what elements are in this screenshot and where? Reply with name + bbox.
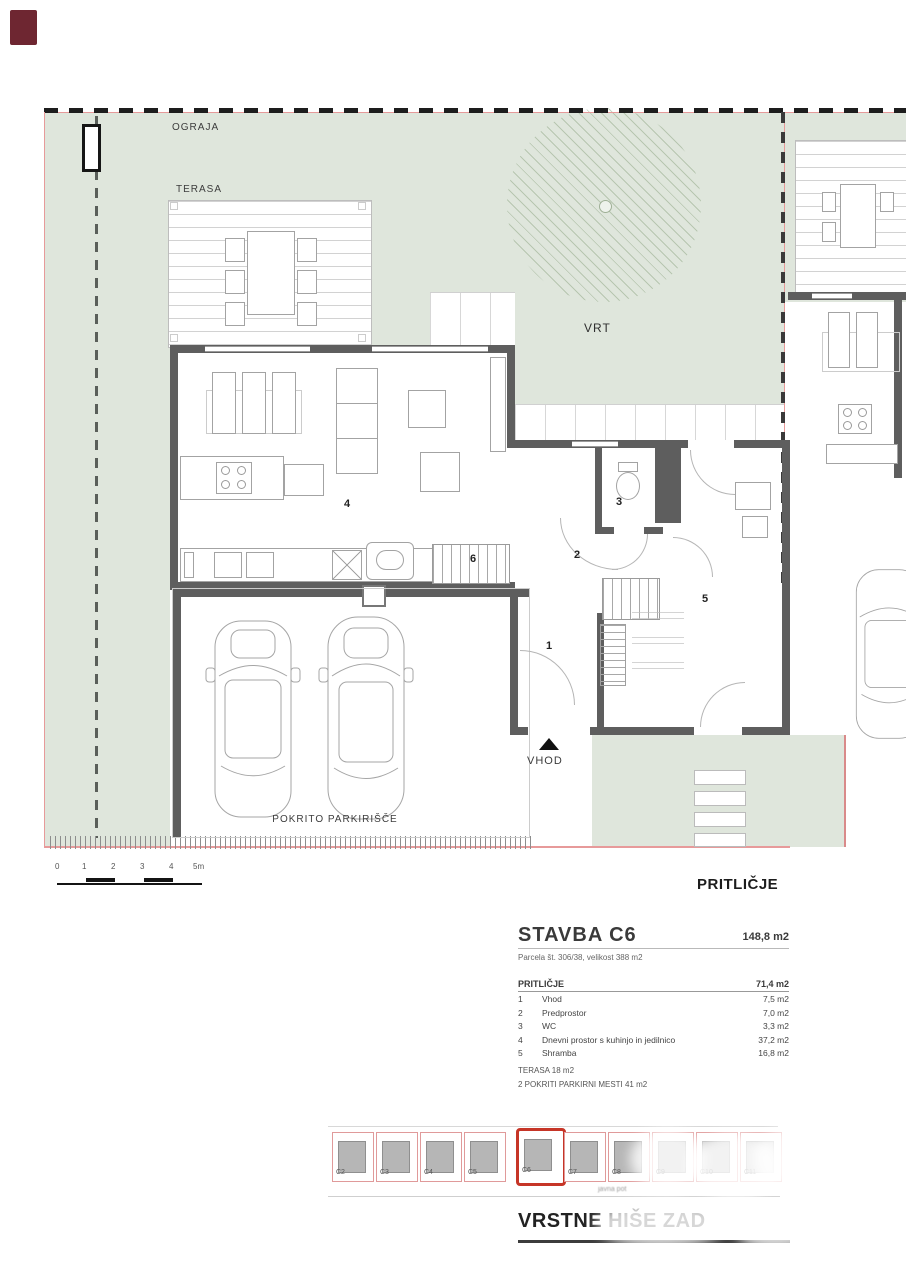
burner — [858, 421, 867, 430]
unit-label: C10 — [700, 1169, 713, 1176]
neighbor-chair — [822, 192, 836, 212]
room-area-cell: 7,5 m2 — [739, 993, 789, 1007]
project-title: VRSTNE HIŠE ZAD — [518, 1210, 706, 1233]
equipment-sketch — [632, 612, 684, 686]
door-opening — [694, 727, 742, 735]
room-number-4: 4 — [344, 498, 350, 510]
unit-label: C11 — [744, 1169, 756, 1176]
dining-chair — [242, 372, 266, 434]
scalebar-segment — [144, 878, 173, 882]
door-opening — [688, 440, 734, 448]
divider — [518, 948, 789, 949]
label-terasa: TERASA — [176, 184, 222, 195]
terrace-chair — [297, 302, 317, 326]
room-row: 4Dnevni prostor s kuhinjo in jedilnico37… — [518, 1034, 789, 1048]
scalebar-bar — [57, 876, 202, 885]
room-name-cell: Vhod — [542, 993, 739, 1007]
room-area-cell: 7,0 m2 — [739, 1007, 789, 1021]
room-area-cell: 37,2 m2 — [739, 1034, 789, 1048]
room-number-2: 2 — [574, 549, 580, 561]
room-no-cell: 4 — [518, 1034, 542, 1048]
burner — [237, 480, 246, 489]
unit-label: C4 — [424, 1169, 433, 1176]
window — [205, 346, 310, 352]
terrace-corner — [170, 202, 178, 210]
door-arc — [700, 682, 745, 727]
unit-label: C5 — [468, 1169, 477, 1176]
burner — [237, 466, 246, 475]
boundary-dashed-top — [44, 108, 906, 113]
car-outline — [203, 616, 303, 822]
scalebar-ticks: 012345m — [55, 862, 215, 874]
blur-smudge — [735, 1208, 815, 1250]
paving-strip-south — [515, 404, 785, 441]
pantry-box — [332, 550, 362, 580]
room-number-1: 1 — [546, 640, 552, 652]
door-arc — [560, 518, 618, 570]
room-table-body: 1Vhod7,5 m22Predprostor7,0 m23WC3,3 m24D… — [518, 993, 789, 1061]
entry-steps — [694, 812, 746, 827]
room-name-cell: Shramba — [542, 1047, 739, 1061]
storage-shelves — [600, 624, 626, 686]
site-map-unit-C2: C2 — [332, 1132, 374, 1182]
wall-segment — [782, 448, 790, 735]
scalebar-tick: 5m — [193, 862, 204, 871]
door-arc — [673, 537, 713, 577]
label-vrt: VRT — [584, 321, 611, 335]
site-map-unit-C9: C9 — [652, 1132, 694, 1182]
unit-label: C8 — [612, 1169, 621, 1176]
title-underline — [518, 1240, 790, 1243]
terrace-chair — [225, 270, 245, 294]
entry-steps — [694, 833, 746, 847]
toilet-tank — [618, 462, 638, 472]
site-map-unit-C8: C8 — [608, 1132, 650, 1182]
scalebar-tick: 4 — [169, 862, 173, 871]
sofa — [336, 368, 378, 474]
floor-label: PRITLIČJE — [697, 876, 778, 893]
entrance-door-opening — [528, 727, 590, 735]
neighbor-chair — [856, 312, 878, 368]
wall-segment — [655, 443, 681, 523]
room-row: 1Vhod7,5 m2 — [518, 993, 789, 1007]
entry-steps — [694, 770, 746, 785]
neighbor-cooktop — [838, 404, 872, 434]
scalebar-tick: 3 — [140, 862, 144, 871]
side-table — [408, 390, 446, 428]
tv-sideboard — [490, 357, 506, 452]
floor-header: PRITLIČJE — [518, 979, 564, 989]
terrace-chair — [297, 270, 317, 294]
burner — [858, 408, 867, 417]
wall-segment — [507, 345, 515, 448]
label-pokrito-parkirisce: POKRITO PARKIRIŠČE — [225, 814, 445, 825]
site-map-unit-C11: C11 — [740, 1132, 782, 1182]
burner — [843, 408, 852, 417]
dining-chair — [272, 372, 296, 434]
garden-area-right — [515, 348, 785, 404]
burner — [843, 421, 852, 430]
divider — [328, 1196, 780, 1197]
neighbor-counter — [826, 444, 898, 464]
building-area: 148,8 m2 — [718, 931, 789, 943]
fence-dashed-left — [95, 116, 98, 838]
unit-label: C6 — [522, 1167, 531, 1174]
unit-label: C3 — [380, 1169, 389, 1176]
site-map-unit-C6: C6 — [516, 1128, 566, 1186]
neighbor-chair — [880, 192, 894, 212]
room-no-cell: 2 — [518, 1007, 542, 1021]
room-no-cell: 3 — [518, 1020, 542, 1034]
terrace-chair — [297, 238, 317, 262]
vhod-arrow-icon — [539, 738, 559, 750]
neighbor-chair — [822, 222, 836, 242]
room-area-cell: 3,3 m2 — [739, 1020, 789, 1034]
wall-segment — [515, 440, 790, 448]
side-table — [420, 452, 460, 492]
label-ograja: OGRAJA — [172, 122, 219, 133]
room-row: 3WC3,3 m2 — [518, 1020, 789, 1034]
cabinet — [184, 552, 194, 578]
label-vhod: VHOD — [527, 755, 563, 767]
utility-unit — [735, 482, 771, 510]
window — [812, 293, 852, 299]
garden-strip-left — [45, 348, 170, 846]
car-outline — [846, 556, 906, 752]
floor-plan-sheet: OGRAJA TERASA VRT VHOD POKRITO PARKIRIŠČ… — [0, 0, 906, 1280]
parking-summary: 2 POKRITI PARKIRNI MESTI 41 m2 — [518, 1080, 647, 1089]
neighbor-chair — [828, 312, 850, 368]
divider — [328, 1126, 778, 1127]
terrace-corner — [358, 334, 366, 342]
room-name-cell: Predprostor — [542, 1007, 739, 1021]
terrace-corner — [170, 334, 178, 342]
room-number-6: 6 — [470, 553, 476, 565]
floor-area-total: 71,4 m2 — [729, 979, 789, 989]
scalebar-tick: 2 — [111, 862, 115, 871]
unit-label: C9 — [656, 1169, 665, 1176]
door-arc — [690, 450, 735, 495]
scalebar-segment — [86, 878, 115, 882]
room-row: 2Predprostor7,0 m2 — [518, 1007, 789, 1021]
fireplace-inner — [376, 550, 404, 570]
building-title: STAVBA C6 — [518, 924, 637, 947]
car-outline — [317, 612, 415, 824]
scalebar: 012345m — [55, 862, 215, 892]
site-map-caption: javna pot — [598, 1186, 626, 1193]
room-area-cell: 16,8 m2 — [739, 1047, 789, 1061]
room-no-cell: 5 — [518, 1047, 542, 1061]
parcel-info: Parcela št. 306/38, velikost 388 m2 — [518, 953, 643, 962]
island-table — [284, 464, 324, 496]
unit-label: C2 — [336, 1169, 345, 1176]
room-name-cell: Dnevni prostor s kuhinjo in jedilnico — [542, 1034, 739, 1048]
terrace-summary: TERASA 18 m2 — [518, 1066, 574, 1075]
terrace-chair — [225, 238, 245, 262]
site-map-unit-C5: C5 — [464, 1132, 506, 1182]
site-map-unit-C4: C4 — [420, 1132, 462, 1182]
room-number-3: 3 — [616, 496, 622, 508]
site-map-unit-C7: C7 — [564, 1132, 606, 1182]
tree-trunk — [599, 200, 612, 213]
gate-post — [82, 124, 101, 172]
terrace-chair — [225, 302, 245, 326]
dining-chair — [212, 372, 236, 434]
scalebar-tick: 1 — [82, 862, 86, 871]
sink — [246, 552, 274, 578]
site-map-unit-C3: C3 — [376, 1132, 418, 1182]
utility-unit — [742, 516, 768, 538]
burner — [221, 466, 230, 475]
room-name-cell: WC — [542, 1020, 739, 1034]
unit-label: C7 — [568, 1169, 577, 1176]
paving-strip — [430, 292, 515, 349]
neighbor-table — [840, 184, 876, 248]
site-map-unit-C10: C10 — [696, 1132, 738, 1182]
entry-steps — [694, 791, 746, 806]
divider — [518, 991, 789, 992]
terrace-table — [247, 231, 295, 315]
room-number-5: 5 — [702, 593, 708, 605]
room-no-cell: 1 — [518, 993, 542, 1007]
door-arc — [520, 650, 575, 705]
parcel-line-left — [44, 112, 45, 848]
terrace-corner — [358, 202, 366, 210]
sink — [214, 552, 242, 578]
corner-color-swatch — [10, 10, 37, 45]
wall-segment — [170, 345, 178, 590]
window — [572, 441, 618, 447]
room-row: 5Shramba16,8 m2 — [518, 1047, 789, 1061]
door-opening — [614, 527, 644, 534]
scalebar-tick: 0 — [55, 862, 59, 871]
burner — [221, 480, 230, 489]
window — [372, 346, 488, 352]
